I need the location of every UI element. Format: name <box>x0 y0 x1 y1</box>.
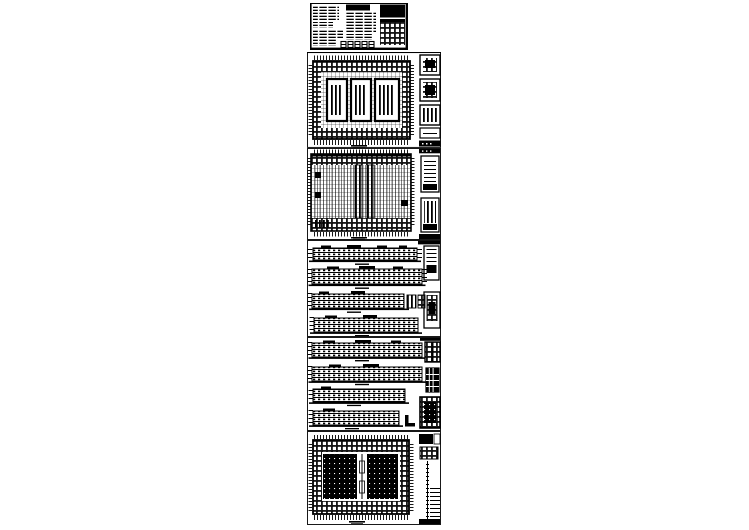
elevation-2 <box>308 266 427 289</box>
window-detail-1 <box>425 342 440 362</box>
title-stamp-bottom <box>419 234 440 239</box>
drawing-set-canvas <box>0 0 749 530</box>
drawing-title-mark <box>349 521 365 524</box>
elevation-3 <box>309 387 410 407</box>
window-detail-lower <box>424 292 440 328</box>
sheet-5-elevations <box>307 337 441 431</box>
floor-plan <box>313 440 409 514</box>
notes-text-column-1 <box>313 5 343 46</box>
sheet-2-floor-plan <box>307 52 441 148</box>
schedule-table <box>380 5 405 46</box>
floor-plan <box>313 61 410 139</box>
elevation-3 <box>308 291 425 313</box>
notes-text-column-2 <box>346 5 376 41</box>
sheet-1-notes <box>310 3 408 50</box>
elevation-1 <box>308 245 422 265</box>
title-stamp <box>419 519 440 524</box>
elevation-4 <box>309 409 404 430</box>
title-stamp <box>420 338 440 341</box>
sheet-6-roof-plan <box>307 431 441 525</box>
legend-stamps <box>341 42 374 48</box>
title-stamp <box>419 141 441 147</box>
elevation-1 <box>308 340 426 361</box>
window-detail-2 <box>426 368 439 392</box>
floor-plan <box>311 154 411 231</box>
sheet-3-floor-plan <box>307 148 441 240</box>
elevation-4 <box>310 315 423 336</box>
section-detail-upper <box>421 156 439 192</box>
detail-column <box>420 55 440 138</box>
detail-column <box>419 434 440 519</box>
title-stamp <box>419 149 440 154</box>
elevation-2 <box>308 364 426 385</box>
sheet-4-elevations <box>307 240 441 337</box>
stair-detail <box>405 415 415 427</box>
title-stamp <box>418 241 440 245</box>
door-detail <box>420 397 440 428</box>
section-detail-lower <box>421 198 439 232</box>
